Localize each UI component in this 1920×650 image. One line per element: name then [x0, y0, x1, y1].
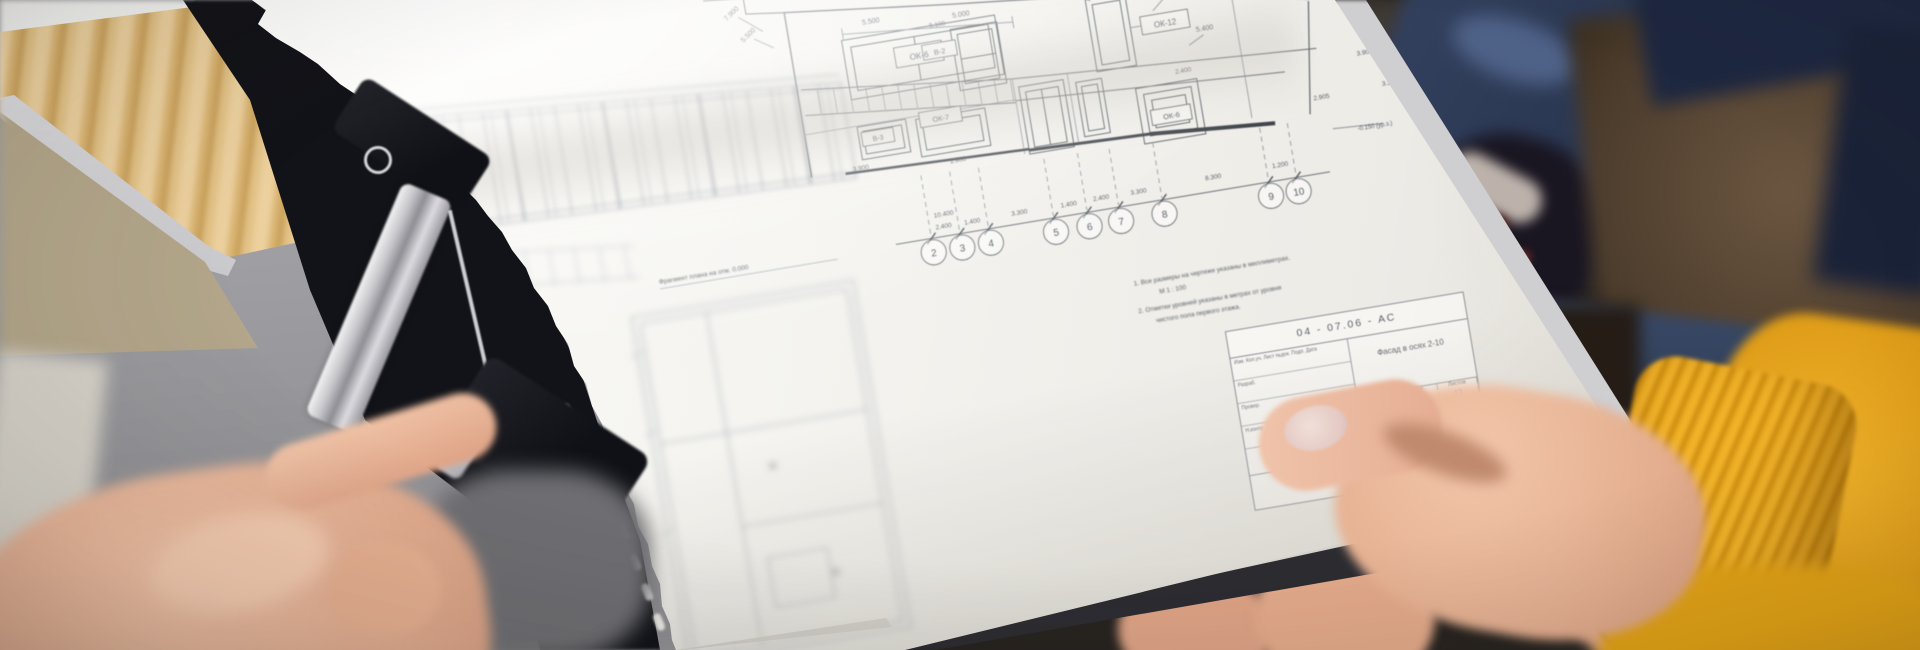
clip-wire-loop: [364, 146, 392, 174]
photo-scene: ОК-6 В-2 ОК-12 ОК-6 В-3 ОК-7 7.900 5.500…: [0, 0, 1920, 650]
left-middle-fingertip: [326, 542, 441, 637]
